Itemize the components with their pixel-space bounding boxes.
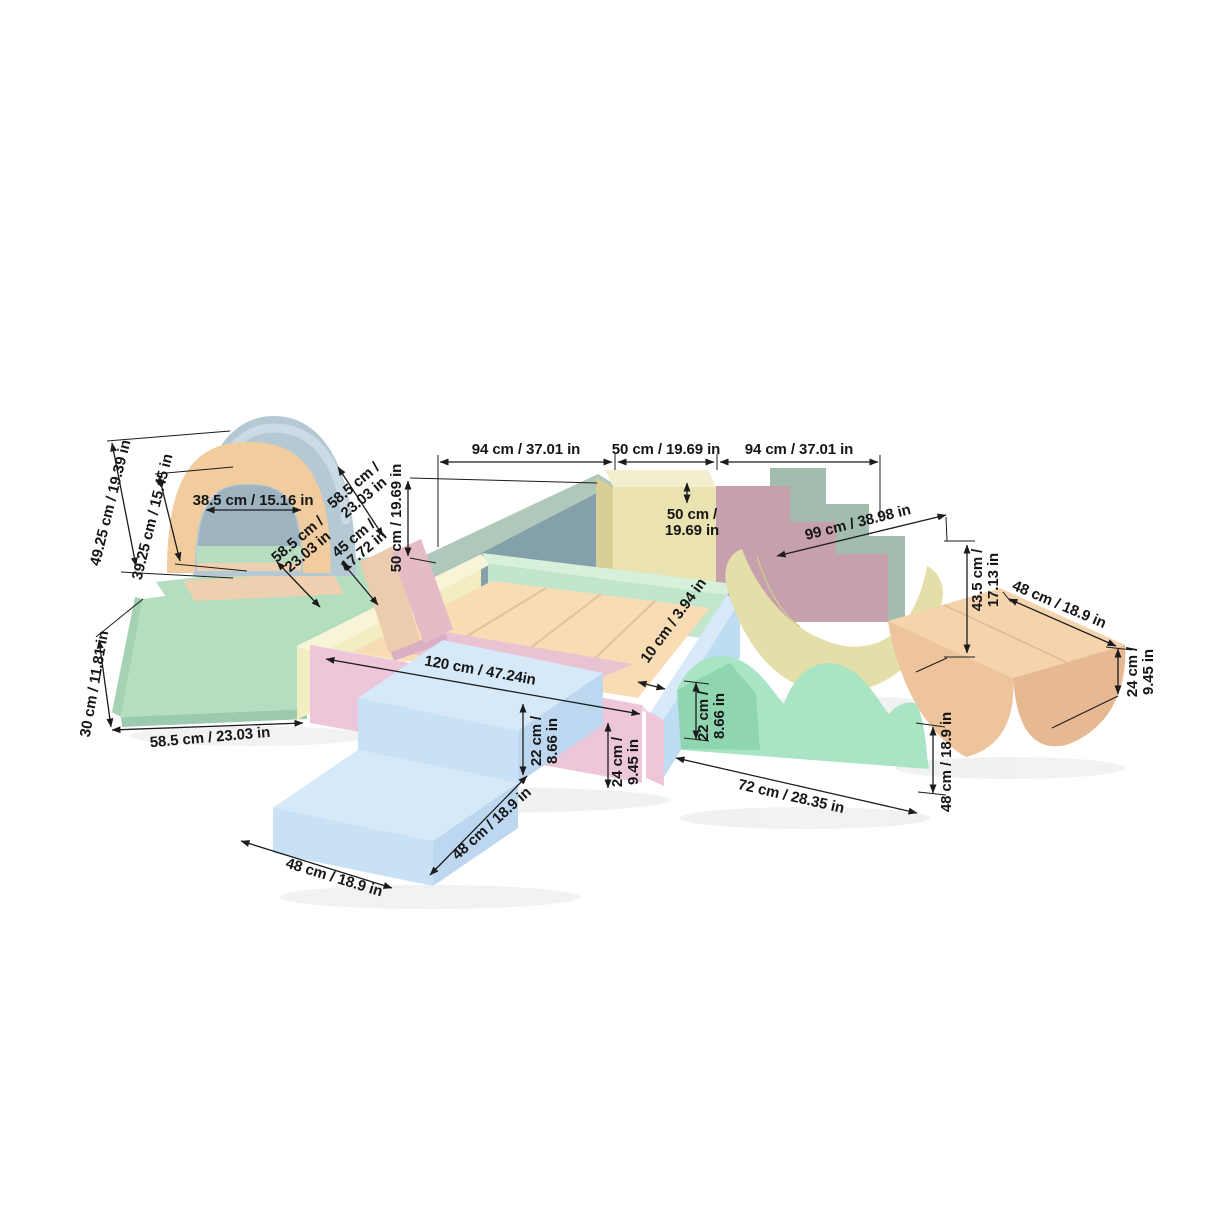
soft-play-dimension-diagram: 49.25 cm / 19.39 in 39.25 cm / 15.45 in …: [0, 0, 1214, 1214]
dim-text: 8.66 in: [545, 716, 561, 766]
dim-label-rocker-yellow-height: 43.5 cm /17.13 in: [970, 549, 1002, 611]
dim-label-wave-width: 48 cm / 18.9 in: [939, 712, 955, 812]
dim-text: 50 cm /: [665, 507, 719, 523]
dim-text: 8.66 in: [712, 691, 728, 741]
pit-corner-cap: [646, 710, 664, 786]
dim-text: 17.13 in: [986, 549, 1002, 611]
dim-text: 43.5 cm /: [970, 549, 986, 611]
dim-label-pit-wall-inner: 22 cm /8.66 in: [529, 716, 561, 766]
shadow: [280, 885, 580, 909]
shadow: [680, 807, 930, 829]
dim-text: 9.45 in: [626, 737, 642, 787]
dim-text: 24 cm /: [610, 737, 626, 787]
dim-text: 24 cm /: [1125, 647, 1141, 697]
dim-label-rocker-peach-height: 24 cm /9.45 in: [1125, 647, 1157, 697]
product-diagram: [0, 0, 1214, 1214]
dim-text: 22 cm /: [529, 716, 545, 766]
center-block-top: [605, 470, 716, 487]
dim-label-span-center: 50 cm / 19.69 in: [612, 442, 720, 458]
dim-text: 94 cm / 37.01 in: [745, 442, 853, 458]
ext-line: [946, 517, 947, 541]
dim-label-tunnel-inner-width: 38.5 cm / 15.16 in: [193, 493, 314, 509]
dim-text: 50 cm / 19.69 in: [612, 442, 720, 458]
dim-text: 48 cm / 18.9 in: [939, 712, 955, 812]
dim-text: 94 cm / 37.01 in: [472, 442, 580, 458]
dim-label-wave-height: 22 cm /8.66 in: [696, 691, 728, 741]
dim-text: 38.5 cm / 15.16 in: [193, 493, 314, 509]
dim-label-block-height: 50 cm /19.69 in: [665, 507, 719, 539]
dim-label-wall-height: 50 cm / 19.69 in: [389, 464, 405, 572]
dim-label-pit-wall-outer: 24 cm /9.45 in: [610, 737, 642, 787]
dim-text: 19.69 in: [665, 523, 719, 539]
dim-text: 50 cm / 19.69 in: [389, 464, 405, 572]
dim-text: 22 cm /: [696, 691, 712, 741]
shadow: [895, 757, 1125, 779]
dim-label-span-right: 94 cm / 37.01 in: [745, 442, 853, 458]
dim-text: 9.45 in: [1141, 647, 1157, 697]
dim-label-span-left: 94 cm / 37.01 in: [472, 442, 580, 458]
